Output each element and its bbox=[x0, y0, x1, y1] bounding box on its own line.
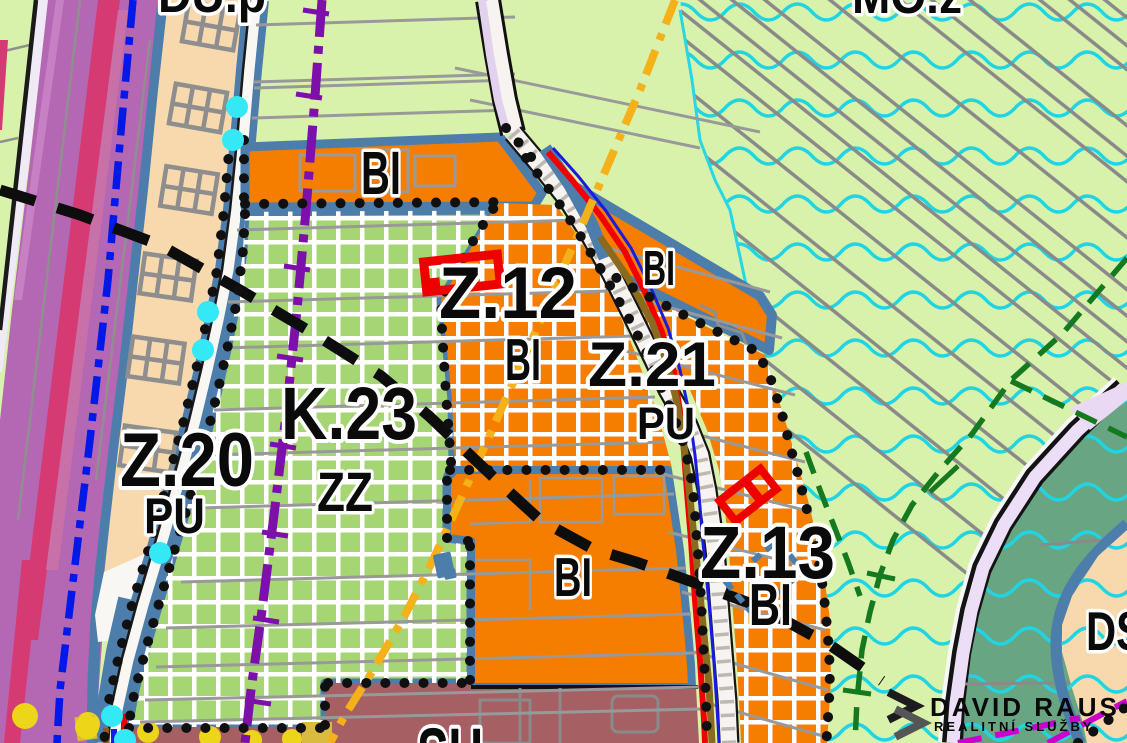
svg-text:DS: DS bbox=[1086, 600, 1127, 662]
svg-text:BI: BI bbox=[361, 139, 401, 207]
svg-text:BI: BI bbox=[749, 572, 792, 638]
svg-text:BI: BI bbox=[505, 327, 541, 393]
svg-text:K.23: K.23 bbox=[281, 372, 417, 455]
svg-text:SU: SU bbox=[417, 713, 483, 743]
svg-text:BI: BI bbox=[643, 242, 675, 296]
svg-text:BI: BI bbox=[554, 546, 592, 608]
svg-text:ZZ: ZZ bbox=[317, 460, 373, 523]
svg-text:Z.21: Z.21 bbox=[588, 330, 716, 400]
svg-text:DU.p: DU.p bbox=[158, 0, 266, 23]
svg-text:PU: PU bbox=[144, 488, 205, 544]
svg-text:PU: PU bbox=[637, 398, 695, 449]
svg-text:Z.12: Z.12 bbox=[439, 253, 577, 334]
svg-text:REALITNÍ SLUŽBY: REALITNÍ SLUŽBY bbox=[934, 719, 1095, 734]
svg-text:DAVID RAUS: DAVID RAUS bbox=[930, 692, 1120, 722]
svg-text:MO.z: MO.z bbox=[852, 0, 962, 24]
